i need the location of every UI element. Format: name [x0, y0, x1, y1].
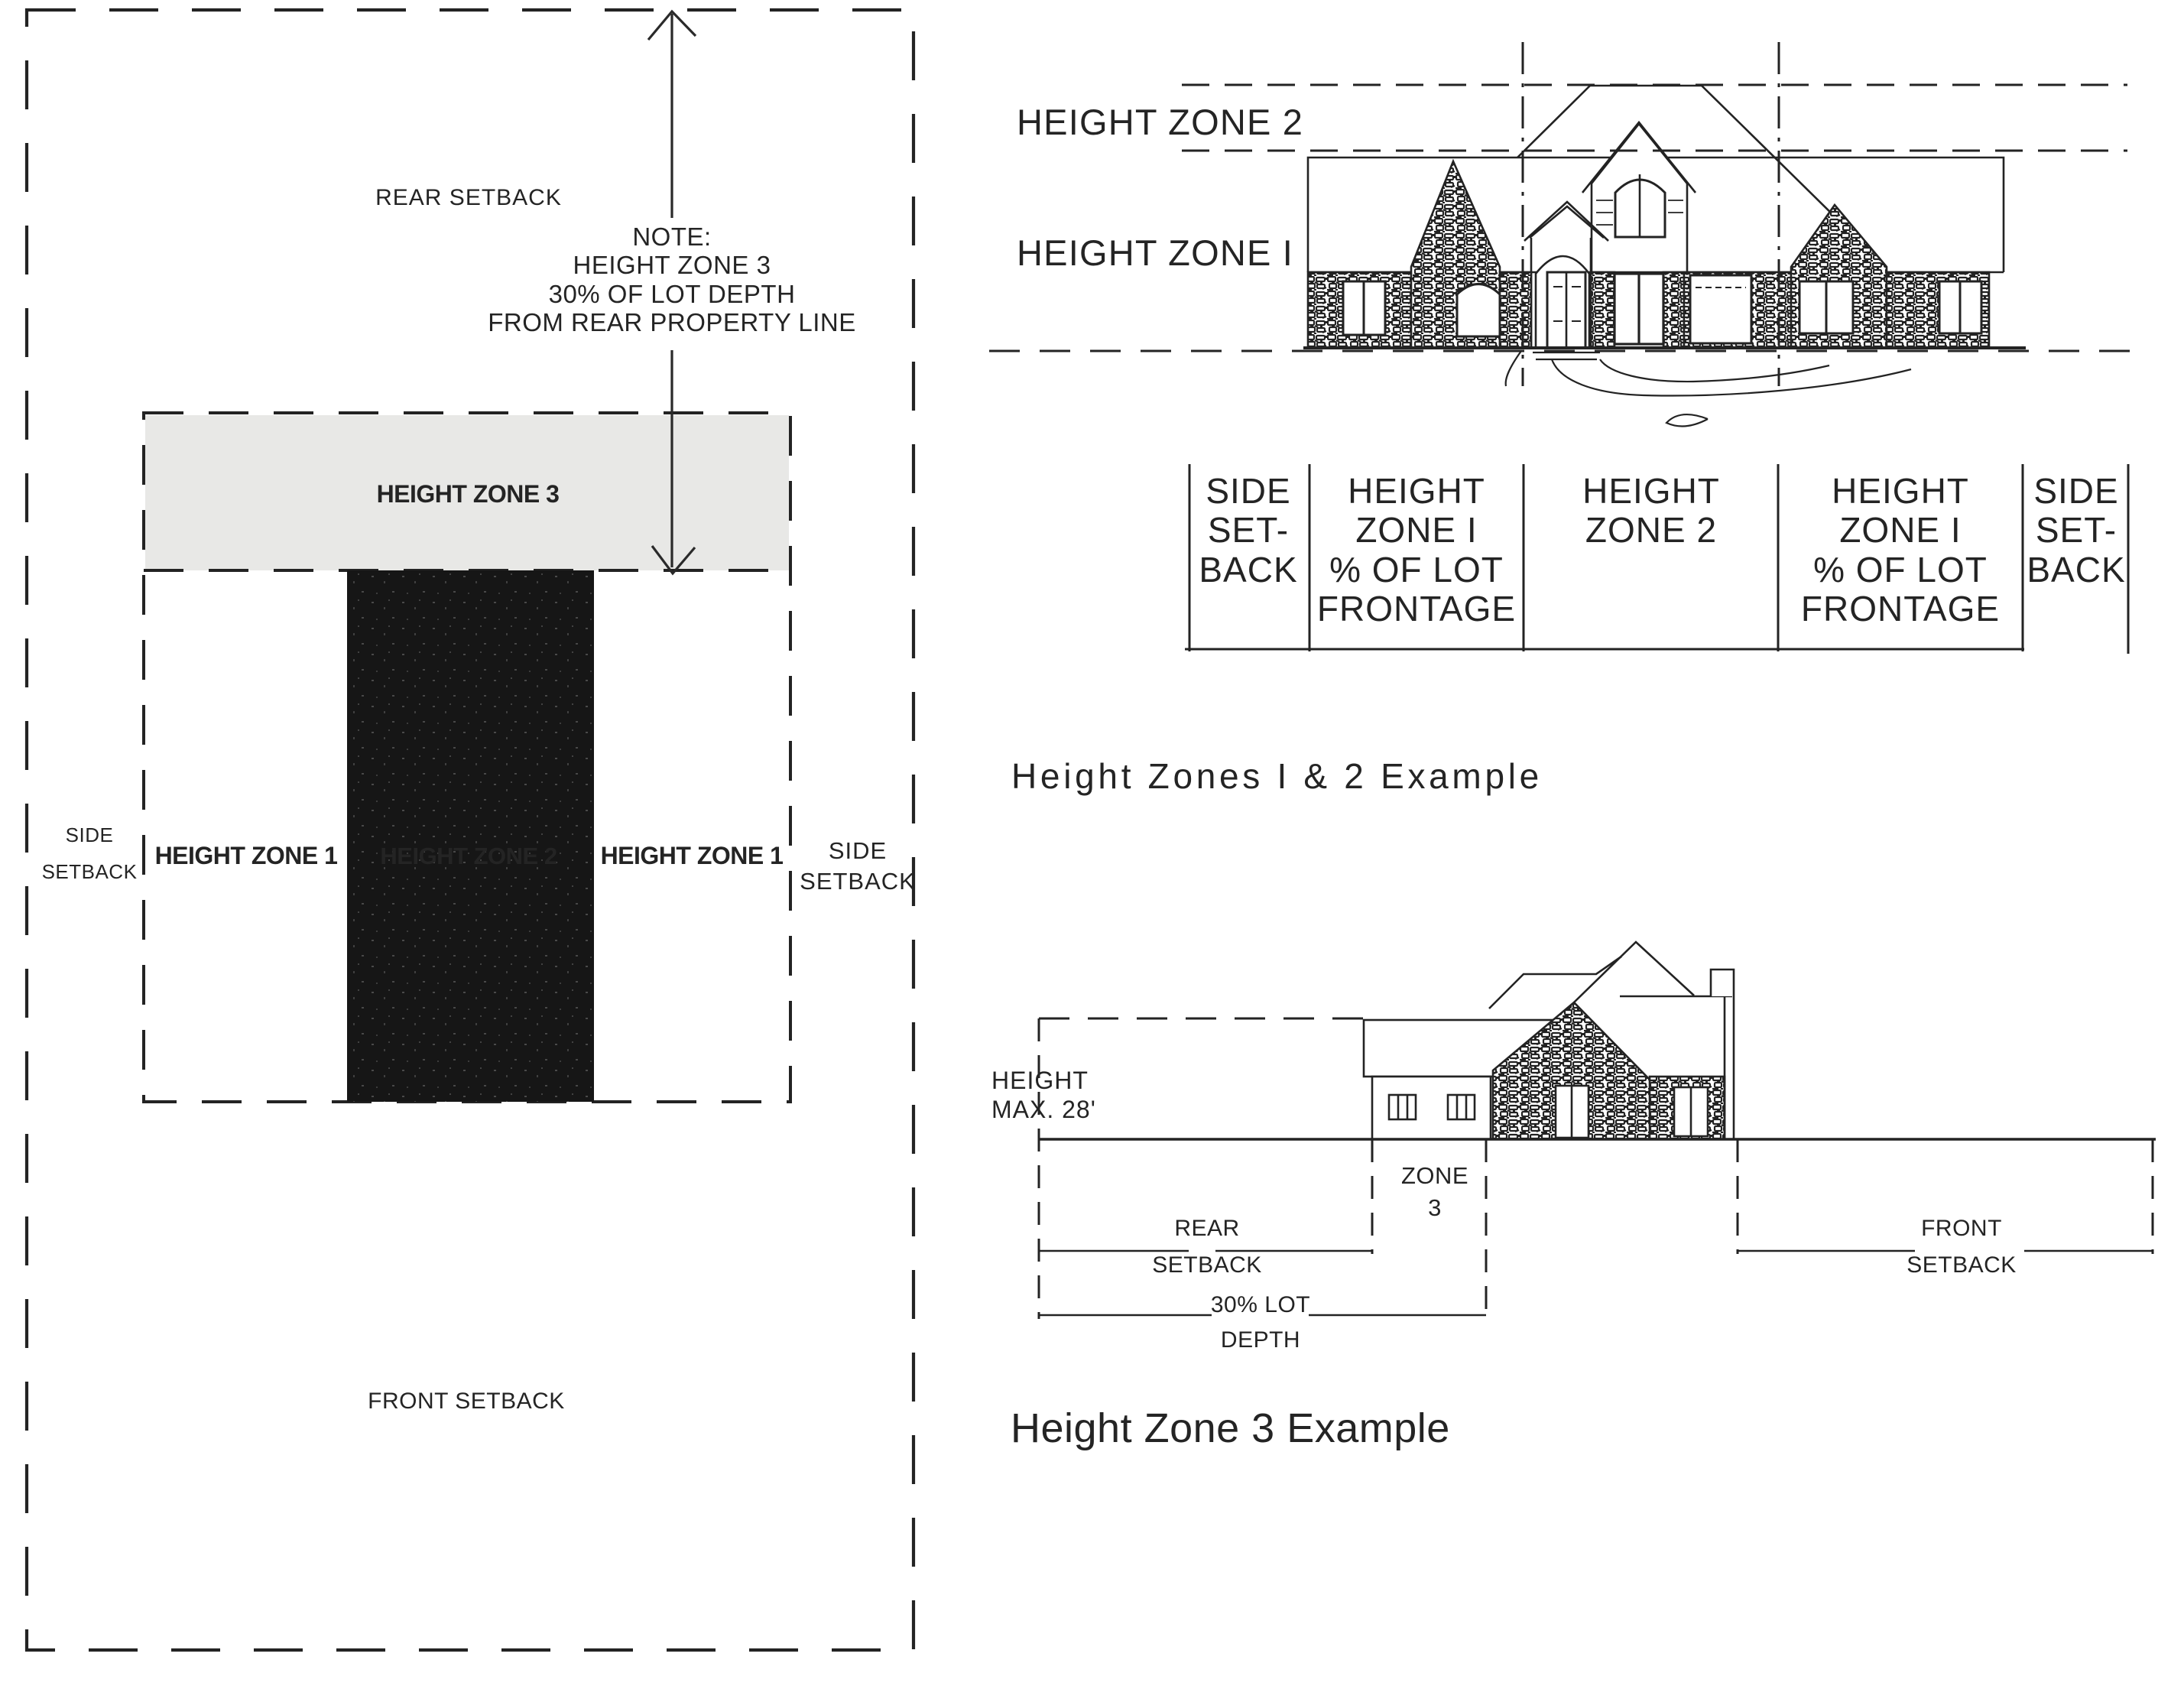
svg-text:MAX. 28': MAX. 28' [991, 1096, 1096, 1123]
svg-text:BACK: BACK [2027, 550, 2125, 590]
svg-text:REAR SETBACK: REAR SETBACK [375, 185, 562, 210]
svg-text:HEIGHT ZONE I: HEIGHT ZONE I [1017, 232, 1293, 273]
svg-text:BACK: BACK [1199, 550, 1297, 590]
svg-text:NOTE:: NOTE: [632, 222, 711, 251]
svg-text:HEIGHT: HEIGHT [1582, 471, 1720, 511]
svg-text:30% LOT: 30% LOT [1211, 1292, 1310, 1317]
svg-text:HEIGHT: HEIGHT [1348, 471, 1485, 511]
svg-text:ZONE: ZONE [1401, 1162, 1468, 1189]
svg-text:HEIGHT ZONE 2: HEIGHT ZONE 2 [1017, 102, 1303, 142]
svg-text:FRONTAGE: FRONTAGE [1317, 589, 1516, 629]
svg-text:ZONE 2: ZONE 2 [1585, 510, 1717, 550]
svg-text:HEIGHT ZONE 3: HEIGHT ZONE 3 [573, 251, 771, 279]
svg-text:HEIGHT: HEIGHT [991, 1067, 1089, 1094]
svg-text:HEIGHT ZONE 2: HEIGHT ZONE 2 [380, 843, 557, 869]
svg-text:3: 3 [1428, 1194, 1442, 1221]
svg-text:DEPTH: DEPTH [1221, 1327, 1300, 1353]
svg-text:SETBACK: SETBACK [800, 868, 916, 895]
svg-text:HEIGHT ZONE 3: HEIGHT ZONE 3 [377, 480, 560, 508]
svg-text:% OF LOT: % OF LOT [1813, 550, 1988, 590]
svg-text:SETBACK: SETBACK [1152, 1252, 1262, 1278]
svg-text:ZONE I: ZONE I [1839, 510, 1961, 550]
svg-text:ZONE I: ZONE I [1355, 510, 1477, 550]
svg-text:REAR: REAR [1174, 1216, 1239, 1241]
svg-text:SIDE: SIDE [2033, 471, 2118, 511]
svg-text:% OF LOT: % OF LOT [1329, 550, 1504, 590]
svg-text:SETBACK: SETBACK [1907, 1252, 2017, 1278]
svg-text:SET-: SET- [2036, 510, 2117, 550]
svg-text:Height Zone 3 Example: Height Zone 3 Example [1011, 1405, 1450, 1451]
svg-text:SET-: SET- [1208, 510, 1289, 550]
svg-text:SIDE: SIDE [66, 823, 114, 846]
svg-text:HEIGHT: HEIGHT [1832, 471, 1969, 511]
svg-text:SIDE: SIDE [829, 837, 887, 864]
svg-text:FRONT: FRONT [1921, 1216, 2002, 1241]
svg-text:SETBACK: SETBACK [42, 860, 138, 883]
svg-text:HEIGHT ZONE 1: HEIGHT ZONE 1 [155, 842, 338, 869]
svg-text:HEIGHT ZONE 1: HEIGHT ZONE 1 [601, 842, 784, 869]
svg-text:FROM REAR PROPERTY LINE: FROM REAR PROPERTY LINE [488, 308, 856, 336]
svg-text:FRONT SETBACK: FRONT SETBACK [368, 1389, 565, 1414]
svg-text:SIDE: SIDE [1206, 471, 1290, 511]
svg-text:FRONTAGE: FRONTAGE [1801, 589, 2000, 629]
svg-text:Height Zones I & 2 Example: Height Zones I & 2 Example [1011, 756, 1543, 796]
svg-text:30% OF LOT DEPTH: 30% OF LOT DEPTH [549, 280, 796, 308]
